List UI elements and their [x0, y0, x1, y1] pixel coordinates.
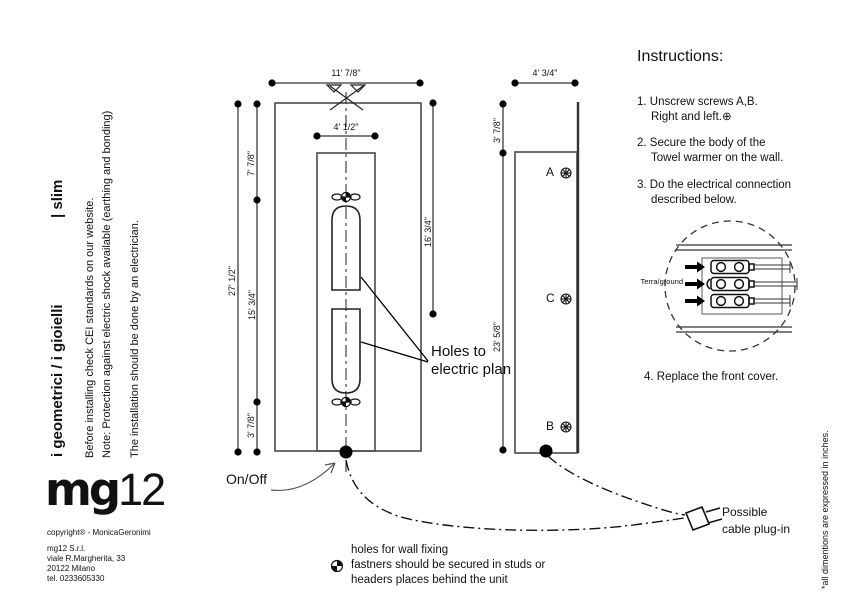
instruction-step3-line1: 3. Do the electrical connection: [637, 179, 791, 192]
dim-front-top: 7' 7/8": [246, 151, 256, 176]
instructions-heading: Instructions:: [637, 48, 723, 66]
dim-front-mid: 15' 3/4": [247, 290, 257, 320]
terminal-wires: [754, 261, 797, 307]
instruction-step4: 4. Replace the front cover.: [644, 371, 778, 384]
screw-a-icon: [561, 168, 571, 178]
dim-front-width: 11' 7/8": [316, 68, 376, 78]
instruction-step1-line1: 1. Unscrew screws A,B.: [637, 96, 758, 109]
instruction-sheet: i geometrici / i gioielli | slim Before …: [0, 0, 841, 595]
side-view-outline: [515, 102, 578, 453]
address-line-3: 20122 Milano: [47, 564, 95, 573]
dim-front-inner-width: 4' 1/2": [316, 122, 376, 132]
logo-12: 12: [118, 464, 164, 515]
holes-label-line1: Holes to: [431, 343, 486, 360]
side-cable-dot: [540, 445, 553, 458]
address-line-1: mg12 S.r.l.: [47, 544, 85, 553]
instruction-step1-line2: Right and left.⊕: [651, 111, 732, 124]
dim-side-top: 3' 7/8": [492, 118, 502, 143]
dim-front-bottom: 3' 7/8": [246, 413, 256, 438]
screw-c-icon: [561, 294, 571, 304]
cable-plugin-line2: cable plug-in: [722, 523, 790, 537]
onoff-arrow-icon: [271, 463, 335, 490]
mg12-logo: mg12: [45, 464, 164, 516]
dim-side-width: 4' 3/4": [515, 68, 575, 78]
logo-mg: mg: [45, 463, 118, 516]
brand-series: i geometrici / i gioielli: [49, 304, 66, 457]
install-note-3: The installation should be done by an el…: [129, 220, 142, 458]
screw-b-icon: [561, 422, 571, 432]
wall-screw-icon: [332, 192, 360, 201]
cable-lines: [346, 456, 685, 530]
instruction-step3-line2: described below.: [651, 194, 737, 207]
terminal-block: [707, 261, 754, 308]
instruction-step2-line2: Towel warmer on the wall.: [651, 152, 783, 165]
terminal-arrow-icons: [685, 262, 705, 307]
plug-icon: [686, 507, 722, 530]
onoff-dot: [340, 446, 353, 459]
screw-label-c: C: [546, 292, 555, 306]
wall-screw-icon: [332, 397, 360, 406]
onoff-label: On/Off: [226, 471, 267, 487]
cable-plugin-line1: Possible: [722, 506, 767, 520]
fixing-note-line2: fastners should be secured in studs or: [351, 559, 545, 572]
address-line-4: tel. 0233605330: [47, 574, 104, 583]
fixing-note-line3: headers places behind the unit: [351, 574, 508, 587]
screw-label-a: A: [546, 166, 554, 180]
side-dimensions: [500, 80, 578, 453]
brand-model: | slim: [49, 180, 66, 218]
address-line-2: viale R.Margherita, 33: [47, 554, 125, 563]
instruction-step2-line1: 2. Secure the body of the: [637, 137, 766, 150]
dim-front-height: 27' 1/2": [227, 266, 237, 296]
copyright-line: copyright® - MonicaGeronimi: [47, 528, 151, 537]
dim-front-right: 16' 3/4": [423, 217, 433, 247]
fixing-note-line1: holes for wall fixing: [351, 544, 448, 557]
units-note: *all dimentions are expressed in inches.: [820, 430, 830, 589]
holes-label-line2: electric plan: [431, 361, 511, 378]
center-mark-icon: [327, 85, 365, 110]
install-note-1: Before installing check CEI standards on…: [84, 198, 97, 458]
dim-side-body: 23' 5/8": [492, 322, 502, 352]
screw-label-b: B: [546, 420, 554, 434]
terra-ground-label: Terra/ground: [637, 278, 683, 287]
fixing-bullet-icon: [332, 561, 343, 572]
holes-leader-lines: [361, 277, 428, 362]
install-note-2: Note: Protection against electric shock …: [101, 111, 114, 458]
